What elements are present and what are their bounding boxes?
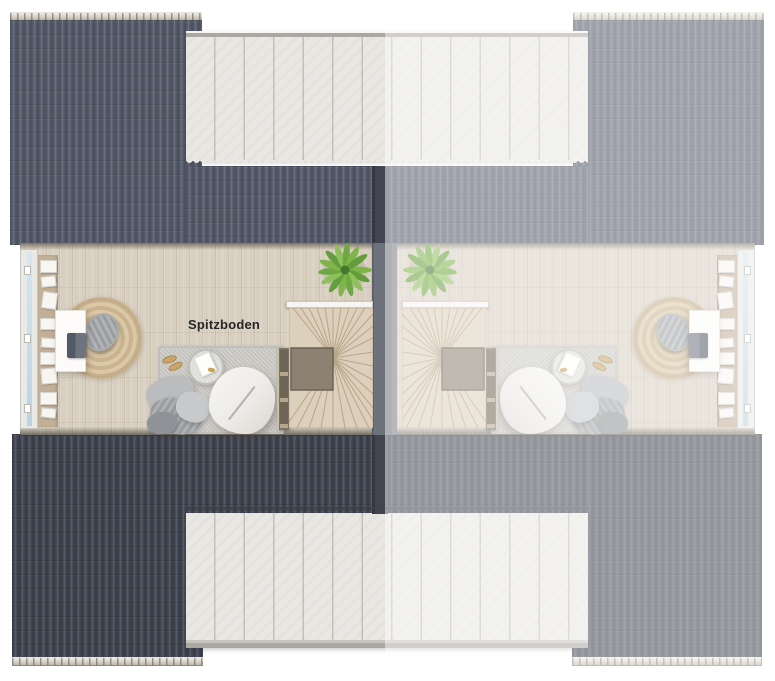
winder-staircase	[402, 308, 486, 428]
unit-right	[0, 0, 775, 681]
book-stack	[718, 318, 735, 330]
sideboard-cells	[487, 350, 495, 428]
plant-icon	[403, 243, 457, 297]
book-stack	[718, 260, 735, 273]
floorplan-canvas: Spitzboden	[0, 0, 775, 681]
window-handle	[744, 334, 751, 343]
book-stack	[718, 392, 735, 405]
stair-handrail	[402, 301, 489, 308]
window-handle	[744, 404, 751, 413]
room-label: Spitzboden	[188, 317, 260, 332]
window-handle	[744, 266, 751, 275]
book-stack	[718, 352, 735, 365]
sideboard	[486, 348, 498, 430]
magazine	[557, 351, 581, 377]
laptop	[689, 333, 708, 358]
book-stack	[718, 337, 735, 348]
book-stack	[719, 407, 735, 419]
gable-window	[737, 249, 755, 429]
book-stack	[718, 275, 734, 288]
book-stack	[717, 291, 734, 310]
